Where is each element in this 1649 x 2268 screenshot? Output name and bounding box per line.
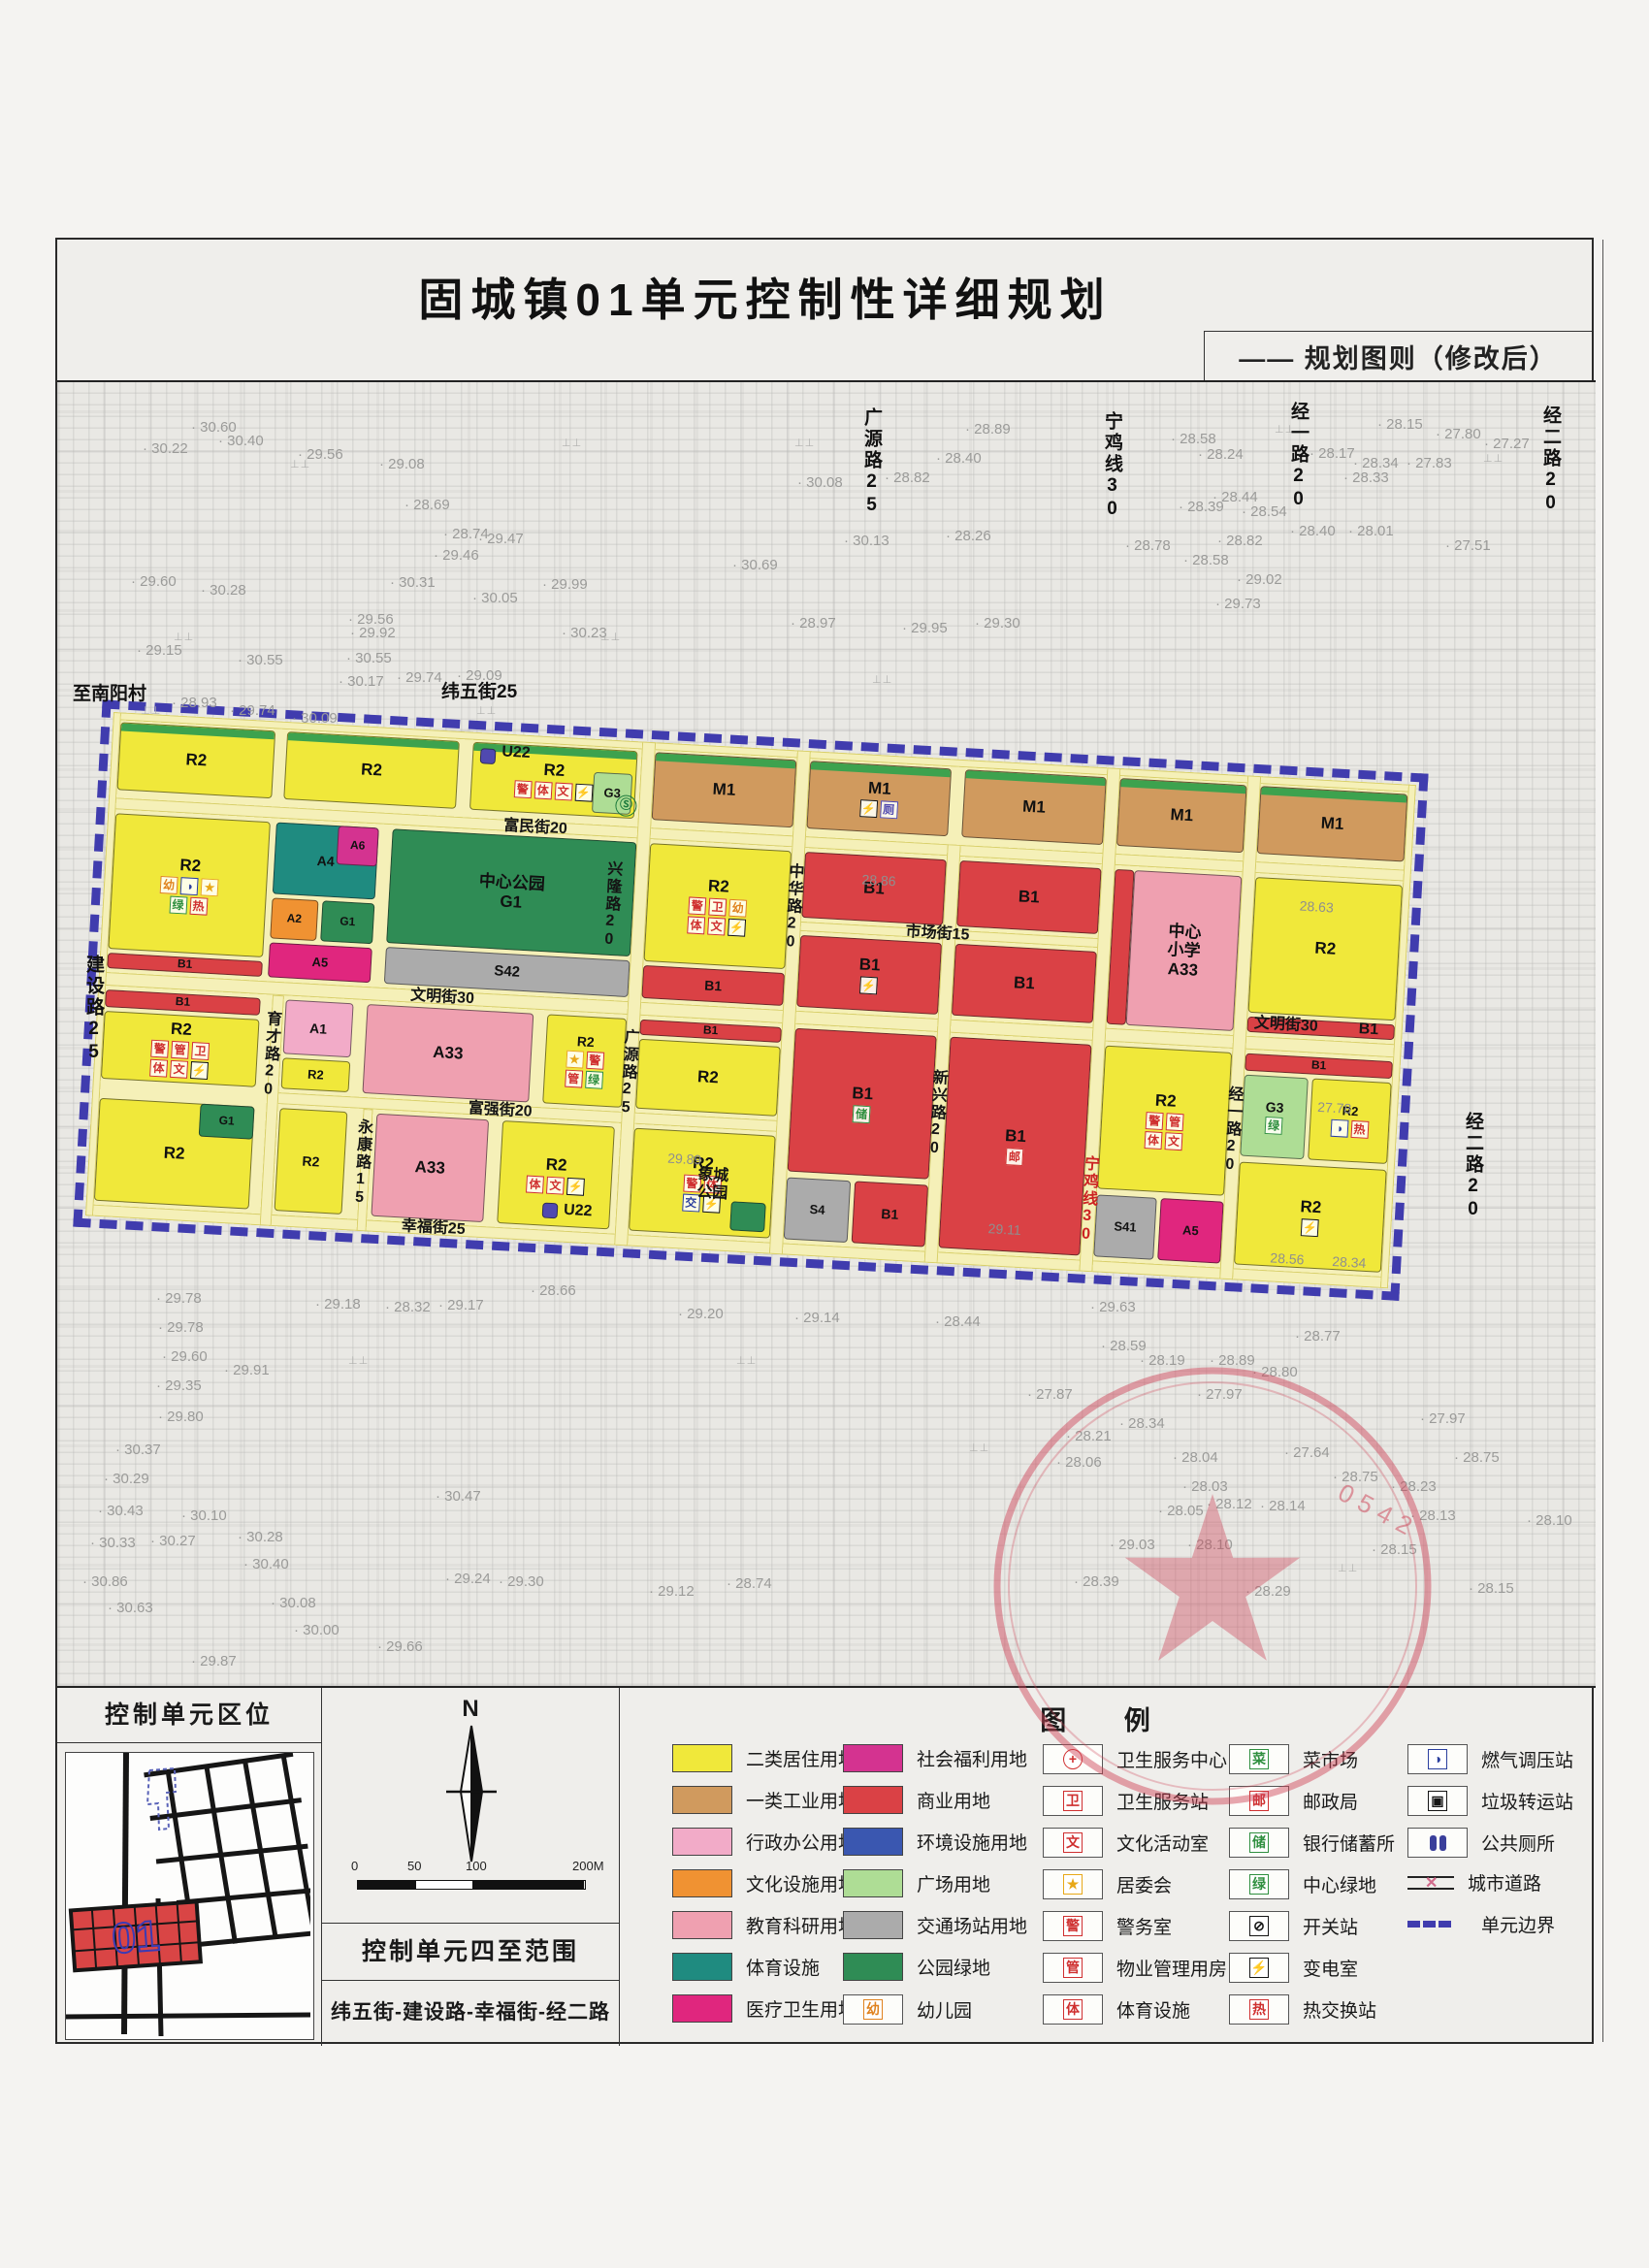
spot-elevation: · 30.43 [98,1503,144,1519]
spot-elevation: · 29.02 [1237,571,1282,588]
legend-icon-体: 体 [1063,1999,1083,2020]
spot-elevation: · 29.14 [794,1310,840,1326]
spot-elevation: · 30.08 [271,1595,316,1611]
legend-item-label: 居委会 [1116,1871,1172,1897]
paddy-field-mark: ⊥⊥ [969,1442,989,1454]
spot-elevation: · 30.37 [115,1442,161,1458]
spot-elevation: · 28.10 [1527,1512,1572,1529]
legend-item-label: 社会福利用地 [917,1745,1027,1771]
legend-icon-+: + [1063,1749,1083,1769]
spot-elevation: · 30.47 [436,1488,481,1505]
spot-elevation: · 29.63 [1090,1299,1136,1315]
map-layer: R2R2R2警体文⚡G3M1M1⚡厕M1M1M1R2幼◑★绿热B1A4A6A2G… [57,382,1596,1686]
legend-item: 体体育设施 [1043,1994,1190,2025]
legend-item: 单元边界 [1407,1911,1555,1937]
spot-elevation: · 28.34 [1119,1415,1165,1432]
spot-elevation: · 29.80 [158,1409,204,1425]
page-subtitle: —— 规划图则（修改后） [1239,338,1558,375]
legend-item: 文化设施用地 [672,1869,857,1897]
legend-item: 二类居住用地 [672,1744,857,1772]
spot-elevation: · 30.13 [844,533,889,549]
spot-elevation: · 30.40 [243,1556,289,1572]
legend-icon-box: ▣ [1407,1786,1468,1816]
spot-elevation: · 27.83 [1406,455,1452,471]
minimap-unit-label: 01 [111,1912,161,1962]
legend-item: 卫卫生服务站 [1043,1786,1209,1816]
spot-elevation: · 27.97 [1420,1410,1466,1427]
location-panel: 控制单元区位 [57,1688,322,2046]
spot-elevation: · 28.78 [1125,537,1171,554]
spot-elevation: · 28.26 [946,528,991,544]
legend-item: 文文化活动室 [1043,1828,1209,1858]
legend-body: 二类居住用地一类工业用地行政办公用地文化设施用地教育科研用地体育设施医疗卫生用地… [620,1688,1596,2046]
legend-swatch [672,1953,732,1981]
spot-elevation: · 29.03 [1110,1537,1155,1553]
legend-icon-box: ◑ [1407,1744,1468,1774]
north-arrow-icon [442,1719,501,1864]
spot-elevation: · 29.15 [137,642,182,659]
spot-elevation: · 27.87 [1027,1386,1073,1403]
spot-elevation: · 28.29 [1245,1583,1291,1600]
legend-item: 菜菜市场 [1229,1744,1358,1774]
boundary-dash [1423,1921,1436,1928]
spot-elevation: · 28.03 [1182,1478,1228,1495]
spot-elevation: · 30.17 [339,673,384,690]
legend-swatch [843,1786,903,1814]
legend-item-label: 邮政局 [1303,1788,1358,1814]
legend-item: 体育设施 [672,1953,820,1981]
compass-panel: N 050100200M 控制单元四至范围 纬五街-建设路-幸福街-经二路 [322,1688,620,2046]
legend-item: 交通场站用地 [843,1911,1027,1939]
spot-elevation: · 29.46 [434,547,479,564]
legend-icon-box: ⊘ [1229,1911,1289,1941]
legend-swatch [843,1744,903,1772]
legend-icon-box: ★ [1043,1869,1103,1899]
legend-item-label: 热交换站 [1303,1996,1376,2023]
legend-item: 商业用地 [843,1786,990,1814]
legend-item: ✕城市道路 [1407,1869,1541,1895]
spot-elevation: · 29.95 [902,620,948,636]
spot-elevation: · 30.27 [150,1533,196,1549]
map-label: 至南阳村 [73,679,146,705]
legend-swatch [843,1953,903,1981]
spot-elevation: · 29.66 [377,1638,423,1655]
spot-elevation: · 28.04 [1173,1449,1218,1466]
spot-elevation: · 28.23 [1391,1478,1437,1495]
spot-elevation: · 29.12 [649,1583,695,1600]
legend-swatch [672,1911,732,1939]
paddy-field-mark: ⊥⊥ [141,704,161,717]
spot-elevation: · 28.39 [1074,1573,1119,1590]
extent-roads: 纬五街-建设路-幸福街-经二路 [322,1980,619,2046]
legend-item: ◑燃气调压站 [1407,1744,1573,1774]
legend-swatch [672,1786,732,1814]
spot-elevation: · 28.12 [1207,1496,1252,1512]
legend-item: 广场用地 [843,1869,990,1897]
legend-item-label: 单元边界 [1481,1911,1555,1937]
spot-elevation: · 28.39 [1179,499,1224,515]
legend-item: 环境设施用地 [843,1828,1027,1856]
legend-item-label: 文化活动室 [1116,1830,1209,1856]
legend-item: 医疗卫生用地 [672,1994,857,2023]
spot-elevation: · 28.06 [1056,1454,1102,1471]
legend-icon-菜: 菜 [1249,1749,1269,1769]
legend-item-label: 幼儿园 [917,1996,972,2023]
legend-item-label: 一类工业用地 [746,1787,857,1813]
spot-elevation: · 28.80 [1252,1364,1298,1380]
spot-elevation: · 28.05 [1158,1503,1204,1519]
legend-item-label: 公园绿地 [917,1954,990,1980]
legend-icon-幼: 幼 [863,1999,883,2020]
legend-icon-box: 管 [1043,1953,1103,1983]
spot-elevation: · 28.40 [1290,523,1336,539]
paddy-field-mark: ⊥⊥ [736,1354,757,1367]
spot-elevation: · 29.60 [162,1348,208,1365]
spot-elevation: · 30.08 [797,474,843,491]
spot-elevation: · 28.82 [1217,533,1263,549]
unit-boundary-icon [1407,1921,1468,1928]
spot-elevation: · 30.55 [346,650,392,666]
legend-icon-box: 绿 [1229,1869,1289,1899]
spot-elevation: · 28.74 [727,1575,772,1592]
header: 固城镇01单元控制性详细规划 —— 规划图则（修改后） [57,240,1592,380]
legend-icon-box: 文 [1043,1828,1103,1858]
road-cross: ✕ [1425,1873,1438,1893]
legend-item-label: 二类居住用地 [746,1745,857,1771]
spot-elevation: · 29.78 [156,1290,202,1307]
bottom-panels: 控制单元区位 [57,1688,1596,2046]
plan-sheet: 固城镇01单元控制性详细规划 —— 规划图则（修改后） R2R2R2警体文⚡G3… [55,238,1594,2044]
legend-icon-box: 热 [1229,1994,1289,2025]
paddy-field-mark: ⊥⊥ [1483,452,1503,465]
spot-elevation: · 29.20 [678,1306,724,1322]
spot-elevation: · 28.40 [936,450,982,467]
map-label: 宁鸡线30 [1099,411,1125,522]
spot-elevation: · 30.55 [238,652,283,668]
legend-icon-box: + [1043,1744,1103,1774]
legend-item: 管物业管理用房 [1043,1953,1227,1983]
legend-item-label: 广场用地 [917,1870,990,1896]
legend-swatch [672,1869,732,1897]
legend-icon-卫: 卫 [1063,1791,1083,1811]
legend-icon-绿: 绿 [1249,1874,1269,1895]
wc-figure [1439,1835,1446,1851]
boundary-dash [1439,1921,1451,1928]
paddy-field-mark: ⊥⊥ [1338,1562,1358,1574]
legend-item: 绿中心绿地 [1229,1869,1376,1899]
legend-icon-储: 储 [1249,1832,1269,1853]
location-panel-title: 控制单元区位 [57,1688,321,1743]
spot-elevation: · 28.66 [531,1282,576,1299]
spot-elevation: · 30.63 [108,1600,153,1616]
legend-swatch [843,1911,903,1939]
paddy-field-mark: ⊥⊥ [348,1354,369,1367]
spot-elevation: · 29.92 [350,625,396,641]
spot-elevation: · 30.05 [472,590,518,606]
spot-elevation: · 29.78 [158,1319,204,1336]
spot-elevation: · 29.30 [499,1573,544,1590]
paddy-field-mark: ⊥⊥ [600,631,621,643]
spot-elevation: · 29.99 [542,576,588,593]
spot-elevation: · 28.77 [1295,1328,1341,1345]
spot-elevation: · 28.19 [1140,1352,1185,1369]
legend-item-label: 卫生服务中心 [1116,1746,1227,1772]
spot-elevation: · 28.17 [1309,445,1355,462]
spot-elevation: · 28.93 [172,695,217,711]
legend-item-label: 银行储蓄所 [1303,1830,1395,1856]
spot-elevation: · 28.24 [1198,446,1244,463]
subtitle-box: —— 规划图则（修改后） [1204,331,1592,380]
legend-item: +卫生服务中心 [1043,1744,1227,1774]
spot-elevation: · 29.35 [156,1377,202,1394]
legend-item: ▣垃圾转运站 [1407,1786,1573,1816]
legend-icon-box: ⚡ [1229,1953,1289,1983]
legend-swatch [672,1744,732,1772]
map-label: 纬五街25 [441,677,517,703]
spot-elevation: · 30.22 [143,440,188,457]
legend-item-label: 文化设施用地 [746,1870,857,1896]
plan-map: R2R2R2警体文⚡G3M1M1⚡厕M1M1M1R2幼◑★绿热B1A4A6A2G… [57,380,1596,1688]
spot-elevation: · 28.75 [1454,1449,1500,1466]
compass-area: N 050100200M [322,1688,619,1924]
legend-item: ⊘开关站 [1229,1911,1358,1941]
paddy-field-mark: ⊥⊥ [562,437,582,449]
legend-icon-⚡: ⚡ [1249,1958,1269,1978]
spot-elevation: · 28.21 [1066,1428,1112,1444]
spot-elevation: · 27.64 [1284,1444,1330,1461]
spot-elevation: · 28.15 [1372,1541,1417,1558]
legend-item: 储银行储蓄所 [1229,1828,1395,1858]
spot-elevation: · 29.08 [379,456,425,472]
unit-boundary-dashed [73,699,1428,1301]
legend-swatch [843,1869,903,1897]
map-label: 经二路20 [1460,1112,1486,1222]
legend-item-label: 警务室 [1116,1913,1172,1939]
spot-elevation: · 30.29 [104,1471,149,1487]
legend-item-label: 中心绿地 [1303,1871,1376,1897]
spot-elevation: · 28.44 [935,1313,981,1330]
wc-figure [1430,1835,1437,1851]
legend-item-label: 卫生服务站 [1116,1788,1209,1814]
legend-item: 教育科研用地 [672,1911,857,1939]
legend-item-label: 城市道路 [1468,1869,1541,1895]
legend-item-label: 环境设施用地 [917,1829,1027,1855]
extent-title: 控制单元四至范围 [322,1924,619,1981]
legend-item-label: 体育设施 [746,1954,820,1980]
legend-icon-box: 邮 [1229,1786,1289,1816]
legend-item: 邮邮政局 [1229,1786,1358,1816]
map-label: 广源路25 [858,407,885,518]
legend-swatch [672,1828,732,1856]
legend-item-label: 菜市场 [1303,1746,1358,1772]
spot-elevation: · 28.33 [1343,470,1389,486]
spot-elevation: · 28.54 [1242,503,1287,520]
spot-elevation: · 28.15 [1377,416,1423,433]
spot-elevation: · 30.69 [732,557,778,573]
page-title: 固城镇01单元控制性详细规划 [280,265,1250,329]
spot-elevation: · 29.17 [438,1297,484,1313]
legend-item-label: 医疗卫生用地 [746,1995,857,2022]
spot-elevation: · 30.33 [90,1535,136,1551]
legend-icon-box: 卫 [1043,1786,1103,1816]
legend-item-label: 商业用地 [917,1787,990,1813]
legend-item-label: 教育科研用地 [746,1912,857,1938]
legend-item-label: 燃气调压站 [1481,1746,1573,1772]
legend-icon-文: 文 [1063,1832,1083,1853]
spot-elevation: · 29.74 [397,669,442,686]
map-label: 经一路20 [1285,402,1311,512]
spot-elevation: · 28.01 [1348,523,1394,539]
spot-elevation: · 28.75 [1333,1469,1378,1485]
legend-item-label: 公共厕所 [1481,1830,1555,1856]
spot-elevation: · 30.86 [82,1573,128,1590]
legend-icon-box: 储 [1229,1828,1289,1858]
spot-elevation: · 28.15 [1469,1580,1514,1597]
spot-elevation: · 28.58 [1183,552,1229,568]
spot-elevation: · 28.97 [791,615,836,632]
spot-elevation: · 28.89 [1210,1352,1255,1369]
public-toilet-icon [1407,1828,1468,1858]
legend-icon-邮: 邮 [1249,1791,1269,1811]
legend-icon-box: 幼 [843,1994,903,2025]
legend-icon-⊘: ⊘ [1249,1916,1269,1936]
spot-elevation: · 27.51 [1445,537,1491,554]
spot-elevation: · 30.28 [201,582,246,599]
spot-elevation: · 28.13 [1410,1507,1456,1524]
legend-icon-▣: ▣ [1428,1791,1447,1811]
paddy-field-mark: ⊥⊥ [290,458,310,470]
legend-item-label: 交通场站用地 [917,1912,1027,1938]
paddy-field-mark: ⊥⊥ [476,704,497,717]
spot-elevation: · 28.10 [1187,1537,1233,1553]
legend-item: 热热交换站 [1229,1994,1376,2025]
legend-item: 社会福利用地 [843,1744,1027,1772]
spot-elevation: · 28.14 [1260,1498,1306,1514]
spot-elevation: · 29.30 [975,615,1020,632]
legend-icon-管: 管 [1063,1958,1083,1978]
legend-icon-box: 警 [1043,1911,1103,1941]
city-road-icon: ✕ [1407,1874,1454,1892]
legend-item-label: 开关站 [1303,1913,1358,1939]
legend-item: 一类工业用地 [672,1786,857,1814]
spot-elevation: · 28.69 [404,497,450,513]
scale-tick: 100 [466,1859,487,1873]
legend-item: 公园绿地 [843,1953,990,1981]
paddy-field-mark: ⊥⊥ [174,631,194,643]
legend-item-label: 物业管理用房 [1116,1955,1227,1981]
location-minimap: 01 [65,1752,314,2040]
legend-icon-★: ★ [1063,1874,1083,1895]
spot-elevation: · 30.60 [191,419,237,436]
spot-elevation: · 30.31 [390,574,436,591]
scale-tick: 200M [572,1859,604,1873]
planning-unit-band: R2R2R2警体文⚡G3M1M1⚡厕M1M1M1R2幼◑★绿热B1A4A6A2G… [85,712,1416,1288]
spot-elevation: · 30.09 [292,710,338,727]
scale-tick: 50 [407,1859,421,1873]
spot-elevation: · 27.27 [1484,436,1530,452]
legend-item: 公共厕所 [1407,1828,1555,1858]
spot-elevation: · 29.60 [131,573,177,590]
spot-elevation: · 28.58 [1171,431,1216,447]
spot-elevation: · 28.82 [885,470,930,486]
spot-elevation: · 28.89 [965,421,1011,437]
spot-elevation: · 29.91 [224,1362,270,1378]
minimap-drawing: 01 [66,1753,310,2036]
spot-elevation: · 30.00 [294,1622,339,1638]
legend-item: 警警务室 [1043,1911,1172,1941]
spot-elevation: · 29.18 [315,1296,361,1312]
legend-item: ⚡变电室 [1229,1953,1358,1983]
map-label: 建设路25 [81,955,107,1065]
legend-item-label: 体育设施 [1116,1996,1190,2023]
legend-item: 幼幼儿园 [843,1994,972,2025]
spot-elevation: · 27.97 [1197,1386,1243,1403]
legend-icon-box: 体 [1043,1994,1103,2025]
spot-elevation: · 29.47 [478,531,524,547]
legend-item-label: 行政办公用地 [746,1829,857,1855]
legend-item-label: 变电室 [1303,1955,1358,1981]
spot-elevation: · 27.80 [1436,426,1481,442]
legend-item-label: 垃圾转运站 [1481,1788,1573,1814]
legend-icon-警: 警 [1063,1916,1083,1936]
legend-icon-热: 热 [1249,1999,1269,2020]
legend-item: 行政办公用地 [672,1828,857,1856]
legend-icon-◑: ◑ [1428,1749,1447,1769]
legend-swatch [843,1828,903,1856]
spot-elevation: · 30.28 [238,1529,283,1545]
scale-tick: 0 [351,1859,358,1873]
spot-elevation: · 29.74 [230,702,275,719]
legend-item: ★居委会 [1043,1869,1172,1899]
spot-elevation: · 29.73 [1215,596,1261,612]
legend-panel: 图 例 二类居住用地一类工业用地行政办公用地文化设施用地教育科研用地体育设施医疗… [620,1688,1596,2046]
boundary-dash [1407,1921,1420,1928]
paddy-field-mark: ⊥⊥ [794,437,815,449]
spot-elevation: · 29.24 [445,1571,491,1587]
spot-elevation: · 28.32 [385,1299,431,1315]
spot-elevation: · 30.10 [181,1507,227,1524]
map-label: 经二路20 [1537,405,1564,516]
scale-bar [357,1880,586,1890]
spot-elevation: · 29.87 [191,1653,237,1669]
legend-icon-box: 菜 [1229,1744,1289,1774]
legend-swatch [672,1994,732,2023]
paddy-field-mark: ⊥⊥ [872,673,892,686]
